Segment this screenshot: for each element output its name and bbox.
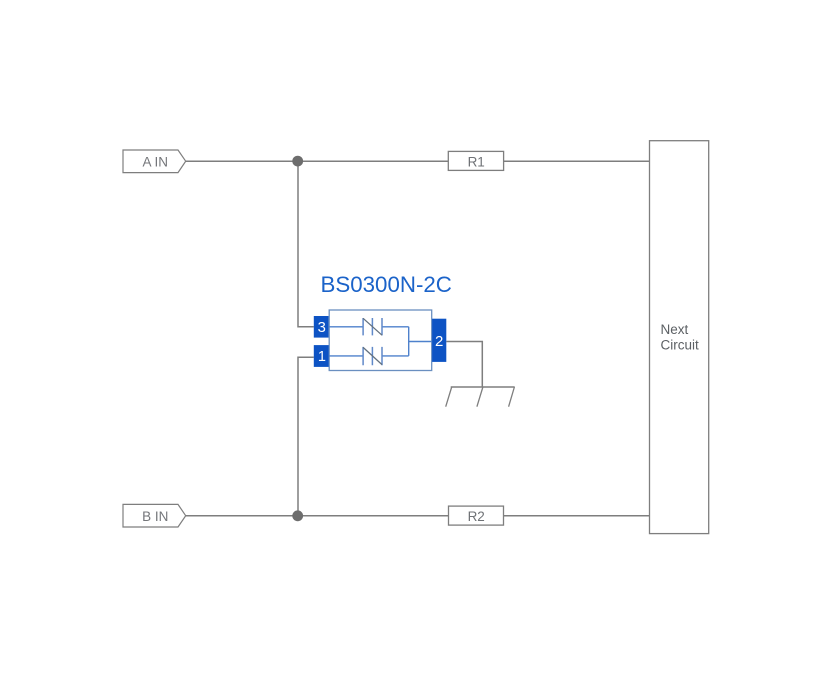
svg-text:1: 1 xyxy=(318,349,326,365)
svg-text:B IN: B IN xyxy=(142,509,168,524)
svg-text:3: 3 xyxy=(318,320,326,336)
svg-text:R1: R1 xyxy=(468,154,485,169)
svg-text:A IN: A IN xyxy=(142,155,168,170)
svg-text:Next: Next xyxy=(661,322,689,337)
svg-text:BS0300N-2C: BS0300N-2C xyxy=(321,272,452,297)
svg-text:2: 2 xyxy=(435,333,443,350)
svg-text:R2: R2 xyxy=(468,509,485,524)
svg-text:Circuit: Circuit xyxy=(661,338,700,353)
